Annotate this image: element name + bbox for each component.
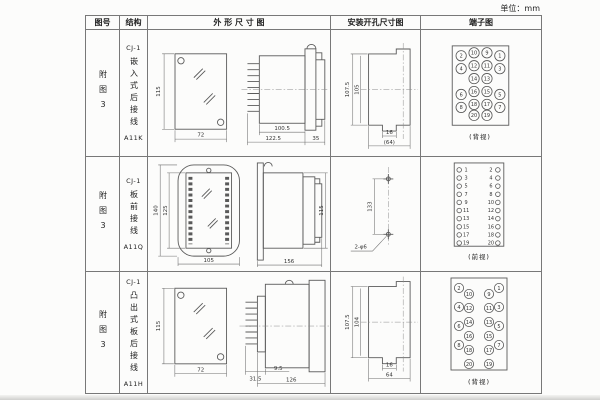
outline-diagram-a11h: 115 72 31.5 9.5 126: [148, 272, 330, 393]
dim-mount-v1: 107.5: [345, 314, 351, 330]
svg-text:13: 13: [463, 216, 469, 222]
terminal-caption: (背视): [469, 132, 491, 141]
svg-text:11: 11: [463, 208, 469, 214]
svg-text:11: 11: [484, 64, 490, 70]
dim-mount-h2: (64): [384, 140, 395, 146]
dim-hole-spacing: 133: [368, 201, 374, 212]
svg-text:13: 13: [486, 320, 492, 326]
row2-fig-no-cell: 附图3: [86, 157, 120, 272]
row3-outline-cell: 115 72 31.5 9.5 126: [148, 272, 331, 393]
terminal-column-left: 135791113151719: [457, 167, 469, 246]
svg-text:7: 7: [497, 343, 500, 349]
svg-text:9: 9: [485, 51, 488, 57]
row1-model-prefix: CJ-1: [126, 44, 141, 52]
seal-screw-icon: [307, 44, 316, 48]
header-structure: 结构: [120, 16, 148, 30]
svg-text:6: 6: [457, 324, 460, 330]
svg-text:6: 6: [489, 184, 492, 190]
svg-text:16: 16: [466, 334, 472, 340]
svg-text:11: 11: [486, 306, 492, 312]
svg-text:17: 17: [463, 233, 469, 239]
row3-mounting-cell: 107.5 104 16 64: [331, 272, 421, 393]
row2-terminal-cell: 135791113151719 2468101214161820 (前视): [421, 157, 541, 272]
svg-text:1: 1: [497, 286, 500, 292]
row1-terminal-cell: 2109141211314136161558181772019 (背视): [421, 30, 541, 157]
svg-text:12: 12: [466, 306, 472, 312]
dim-hole-label: 2-φ6: [354, 245, 367, 251]
dim-side-width: 156: [284, 259, 295, 265]
row1-fig-no-cell: 附图3: [86, 30, 120, 157]
svg-text:9: 9: [465, 200, 468, 206]
dim-mount-h2: 64: [386, 373, 393, 379]
row2-structure-text: 板前接线: [130, 190, 138, 238]
svg-text:18: 18: [488, 233, 494, 239]
terminal-pins-icon: [245, 302, 257, 344]
dim-mount-v1: 107.5: [345, 82, 351, 98]
svg-text:8: 8: [460, 105, 463, 111]
dim-mount-h1: 16: [386, 130, 393, 136]
svg-text:10: 10: [471, 51, 477, 57]
terminal-column-right-inner: 91113151719: [484, 289, 493, 368]
svg-text:2: 2: [457, 286, 460, 292]
header-outline-dims: 外 形 尺 寸 图: [148, 16, 331, 30]
svg-text:17: 17: [484, 102, 490, 108]
terminal-diagram-a11q: 135791113151719 2468101214161820 (前视): [421, 157, 541, 271]
dim-mount-v2: 105: [355, 84, 361, 94]
svg-text:10: 10: [488, 200, 494, 206]
svg-text:5: 5: [465, 184, 468, 190]
terminal-grid: 2109141211314136161558181772019: [456, 48, 505, 121]
svg-text:10: 10: [466, 292, 472, 298]
row3-fig-no: 附图3: [99, 310, 107, 356]
svg-text:4: 4: [460, 66, 463, 72]
svg-text:3: 3: [498, 66, 501, 72]
terminal-column-left-inner: 101214161820: [464, 289, 473, 368]
row3-terminal-cell: 2468 101214161820 91113151719 1357 (背视): [421, 272, 541, 393]
svg-text:7: 7: [465, 192, 468, 198]
row2-model: A11Q: [124, 243, 144, 251]
row2-model-prefix: CJ-1: [126, 177, 141, 185]
svg-text:1: 1: [498, 54, 501, 60]
svg-text:17: 17: [486, 348, 492, 354]
seal-screw-icon: [264, 162, 272, 166]
row1-outline-cell: 115 72 100.5 122.5 35: [148, 30, 331, 157]
terminal-column-right: 2468101214161820: [488, 167, 500, 246]
svg-text:18: 18: [466, 348, 472, 354]
document-page: 单位：mm 图号 结构 外 形 尺 寸 图 安装开孔尺寸图 端子图 附图3 CJ…: [0, 0, 600, 400]
unit-label: 单位：mm: [500, 3, 540, 14]
svg-text:3: 3: [465, 176, 468, 182]
outline-diagram-a11k: 115 72 100.5 122.5 35: [148, 30, 330, 156]
row3-model: A11H: [124, 380, 144, 388]
svg-text:8: 8: [489, 192, 492, 198]
dim-side-height: 115: [319, 205, 325, 215]
header-mounting-dims: 安装开孔尺寸图: [331, 16, 421, 30]
svg-text:14: 14: [488, 216, 494, 222]
svg-text:20: 20: [488, 241, 494, 247]
svg-text:15: 15: [484, 89, 490, 95]
svg-text:2: 2: [489, 167, 492, 173]
dim-side-c: 126: [286, 378, 297, 384]
row1-model: A11K: [124, 134, 143, 142]
svg-text:20: 20: [471, 113, 477, 119]
svg-text:20: 20: [466, 362, 472, 368]
row1-fig-no: 附图3: [99, 70, 107, 116]
svg-text:14: 14: [466, 320, 472, 326]
svg-text:12: 12: [488, 208, 494, 214]
svg-text:6: 6: [460, 92, 463, 98]
svg-text:15: 15: [463, 224, 469, 230]
seal-screw-icon: [285, 280, 293, 284]
svg-text:16: 16: [471, 89, 477, 95]
dim-front-width: 105: [204, 258, 214, 264]
svg-text:19: 19: [484, 113, 490, 119]
spec-table: 图号 结构 外 形 尺 寸 图 安装开孔尺寸图 端子图 附图3 CJ-1 嵌入式…: [85, 15, 542, 394]
svg-text:9: 9: [487, 292, 490, 298]
row3-structure-text: 凸出式板后接线: [130, 291, 138, 375]
svg-text:18: 18: [471, 102, 477, 108]
screw-marks-icon: [202, 189, 218, 229]
terminal-pins-icon: [247, 64, 259, 112]
terminal-column-left-outer: 2468: [454, 283, 463, 349]
svg-text:12: 12: [471, 64, 477, 70]
svg-text:16: 16: [488, 224, 494, 230]
header-terminal-diagram: 端子图: [421, 16, 541, 30]
outline-diagram-a11q: 140 125 105 156 115: [148, 157, 330, 271]
row3-model-prefix: CJ-1: [126, 278, 141, 286]
dim-mount-h1: 16: [386, 363, 393, 369]
row3-structure-cell: CJ-1 凸出式板后接线 A11H: [120, 272, 148, 393]
svg-text:4: 4: [457, 305, 460, 311]
svg-text:2: 2: [460, 54, 463, 60]
svg-text:1: 1: [465, 167, 468, 173]
mounting-diagram-a11q: 133 2-φ6: [331, 157, 420, 271]
svg-text:14: 14: [471, 76, 477, 82]
row1-structure-text: 嵌入式后接线: [130, 57, 138, 129]
row2-structure-cell: CJ-1 板前接线 A11Q: [120, 157, 148, 272]
mounting-diagram-a11h: 107.5 104 16 64: [331, 272, 420, 393]
dim-side-b: 122.5: [265, 136, 281, 142]
svg-text:7: 7: [498, 105, 501, 111]
dim-front-height: 115: [156, 86, 162, 96]
dim-mount-v2: 104: [355, 316, 361, 327]
dim-side-b: 9.5: [274, 366, 283, 372]
svg-text:5: 5: [498, 92, 501, 98]
row1-mounting-cell: 107.5 105 16 (64): [331, 30, 421, 157]
svg-text:4: 4: [489, 176, 492, 182]
dim-front-width: 72: [197, 367, 204, 373]
terminal-diagram-a11k: 2109141211314136161558181772019 (背视): [421, 30, 541, 156]
terminal-column-right-outer: 1357: [494, 283, 503, 349]
svg-text:5: 5: [497, 324, 500, 330]
dim-front-width: 72: [197, 133, 204, 139]
header-fig-no: 图号: [86, 16, 120, 30]
svg-text:3: 3: [497, 305, 500, 311]
page-bottom-shade: [0, 395, 600, 400]
mounting-diagram-a11k: 107.5 105 16 (64): [331, 30, 420, 156]
dim-side-a: 100.5: [274, 126, 290, 132]
terminal-caption: (前视): [468, 252, 490, 261]
row2-fig-no: 附图3: [99, 191, 107, 237]
row2-outline-cell: 140 125 105 156 115: [148, 157, 331, 272]
row1-structure-cell: CJ-1 嵌入式后接线 A11K: [120, 30, 148, 157]
svg-text:13: 13: [484, 76, 490, 82]
dim-side-a: 31.5: [249, 377, 261, 383]
dim-front-height-inner: 125: [163, 205, 169, 215]
dim-front-height: 140: [154, 205, 160, 216]
svg-text:15: 15: [486, 334, 492, 340]
dim-front-height: 115: [156, 321, 162, 331]
svg-text:19: 19: [463, 241, 469, 247]
row2-mounting-cell: 133 2-φ6: [331, 157, 421, 272]
row3-fig-no-cell: 附图3: [86, 272, 120, 393]
dim-side-c: 35: [312, 136, 319, 142]
screw-marks-icon: [194, 69, 215, 105]
screw-marks-icon: [194, 303, 215, 339]
terminal-caption: (背视): [468, 377, 490, 386]
svg-text:8: 8: [457, 343, 460, 349]
terminal-diagram-a11h: 2468 101214161820 91113151719 1357 (背视): [421, 272, 541, 393]
svg-text:19: 19: [486, 362, 492, 368]
